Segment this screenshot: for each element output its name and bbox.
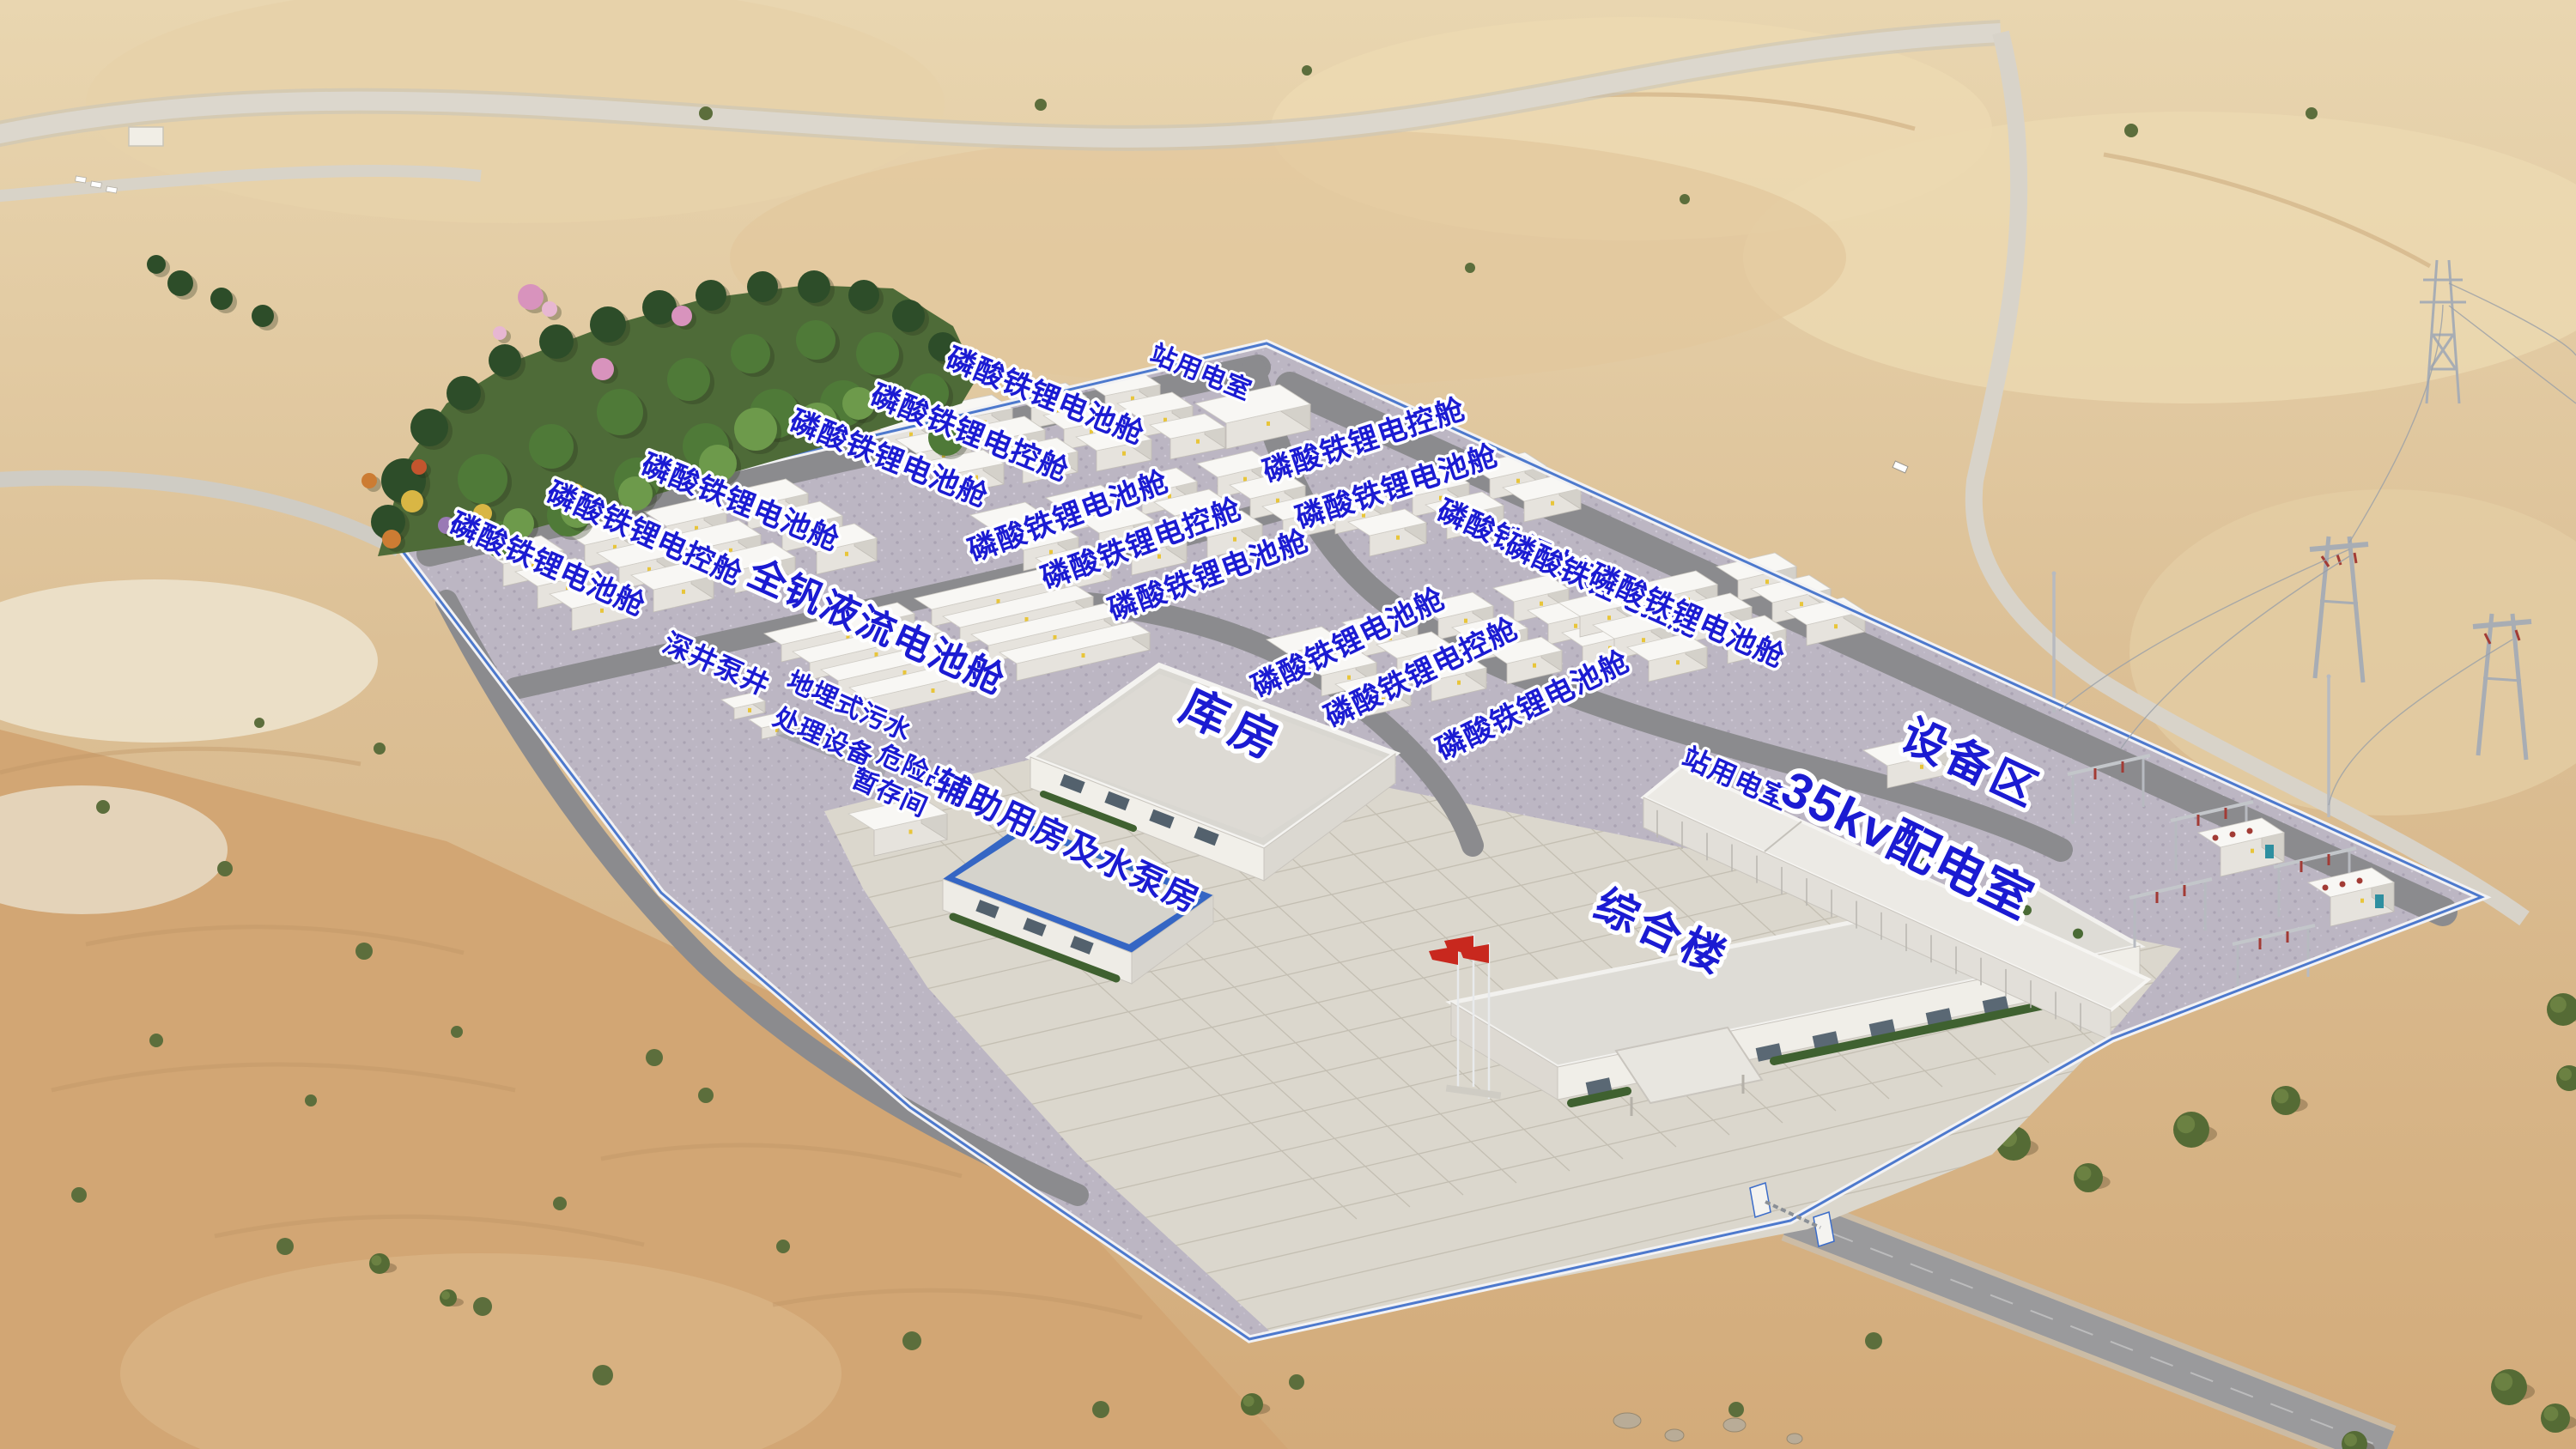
desert-shrub (698, 1088, 714, 1103)
park-tree (410, 409, 448, 446)
park-tree (747, 271, 778, 302)
park-tree (411, 459, 427, 475)
desert-shrub (1680, 194, 1690, 204)
park-tree (592, 358, 614, 380)
park-tree (447, 376, 481, 410)
park-tree (489, 344, 521, 377)
facility-aerial-render: 磷酸铁锂电池舱 磷酸铁锂电控舱 磷酸铁锂电池舱 磷酸铁锂电池舱 磷酸铁锂电控舱 … (0, 0, 2576, 1449)
park-tree (167, 270, 193, 296)
park-tree (671, 306, 692, 326)
desert-shrub (1035, 99, 1047, 111)
desert-shrub (1865, 1332, 1882, 1349)
park-tree (518, 284, 544, 310)
park-tree (401, 490, 423, 512)
park-tree (696, 280, 726, 311)
desert-shrub (217, 861, 233, 876)
desert-shrub (149, 1034, 163, 1047)
desert-shrub (2124, 124, 2138, 137)
desert-shrub (902, 1331, 921, 1350)
park-tree (731, 334, 770, 373)
desert-shrub (96, 800, 110, 814)
desert-shrub (276, 1238, 294, 1255)
park-tree (147, 255, 166, 274)
desert-shrub (71, 1187, 87, 1203)
desert-shrub (355, 943, 373, 960)
desert-shrub (374, 743, 386, 755)
desert-shrub (1302, 65, 1312, 76)
park-tree (848, 280, 879, 311)
desert-shrub (451, 1026, 463, 1038)
park-tree (892, 300, 925, 332)
park-tree (642, 290, 677, 324)
desert-shrub (1728, 1402, 1744, 1417)
park-tree (382, 530, 401, 549)
park-tree (210, 288, 233, 310)
distant-building (129, 127, 163, 146)
park-tree (734, 408, 777, 451)
desert-shrub (2306, 107, 2318, 119)
park-tree (458, 454, 507, 504)
park-tree (539, 324, 574, 359)
desert-shrub (1465, 263, 1475, 273)
park-tree (493, 326, 507, 340)
desert-shrub (473, 1297, 492, 1316)
desert-shrub (1289, 1374, 1304, 1390)
desert-shrub (1092, 1401, 1109, 1418)
desert-shrub (553, 1197, 567, 1210)
park-tree (542, 301, 557, 317)
desert-shrub (592, 1365, 613, 1385)
desert-shrub (776, 1240, 790, 1253)
desert-shrub (305, 1094, 317, 1106)
park-tree (667, 358, 710, 401)
desert-shrub (699, 106, 713, 120)
desert-shrub (646, 1049, 663, 1066)
park-tree (590, 306, 626, 343)
park-tree (796, 320, 835, 360)
park-tree (856, 332, 899, 375)
park-tree (252, 305, 274, 327)
desert-shrub (254, 718, 264, 728)
park-tree (529, 424, 574, 469)
park-tree (597, 389, 643, 435)
park-tree (798, 270, 830, 303)
park-tree (361, 473, 377, 488)
